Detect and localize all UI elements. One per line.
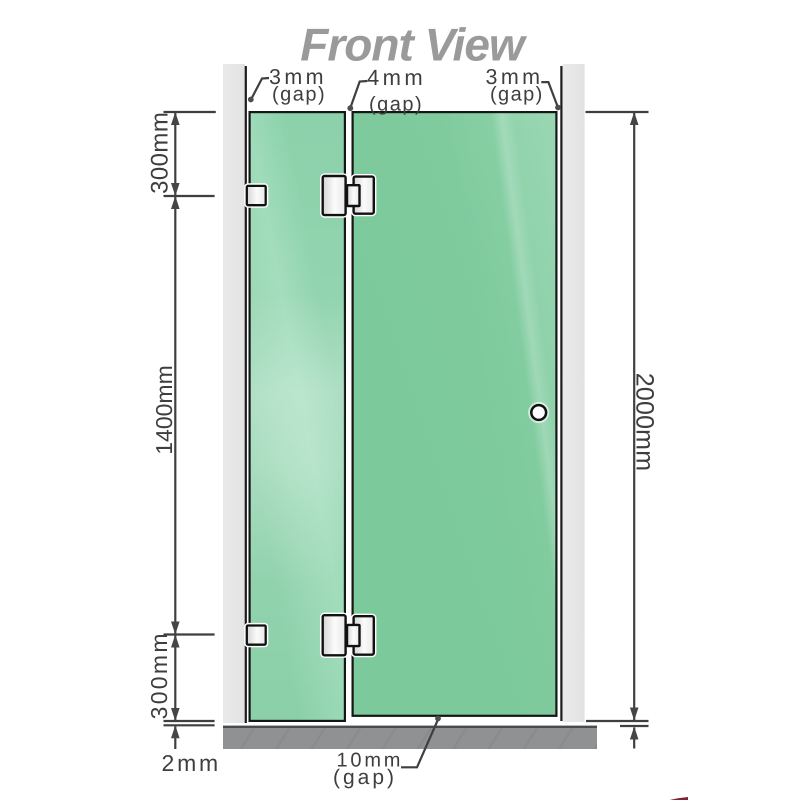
svg-text:2000mm: 2000mm <box>631 373 659 471</box>
svg-text:1400mm: 1400mm <box>151 365 177 454</box>
svg-text:4mm: 4mm <box>367 65 426 90</box>
svg-text:Front View: Front View <box>300 19 528 71</box>
svg-text:300mm: 300mm <box>146 112 173 194</box>
svg-text:300mm: 300mm <box>146 631 172 719</box>
svg-text:(gap): (gap) <box>333 766 397 789</box>
svg-text:(gap): (gap) <box>369 94 423 116</box>
svg-text:2mm: 2mm <box>162 750 222 776</box>
svg-text:(gap): (gap) <box>490 84 544 106</box>
svg-text:(gap): (gap) <box>272 84 326 106</box>
